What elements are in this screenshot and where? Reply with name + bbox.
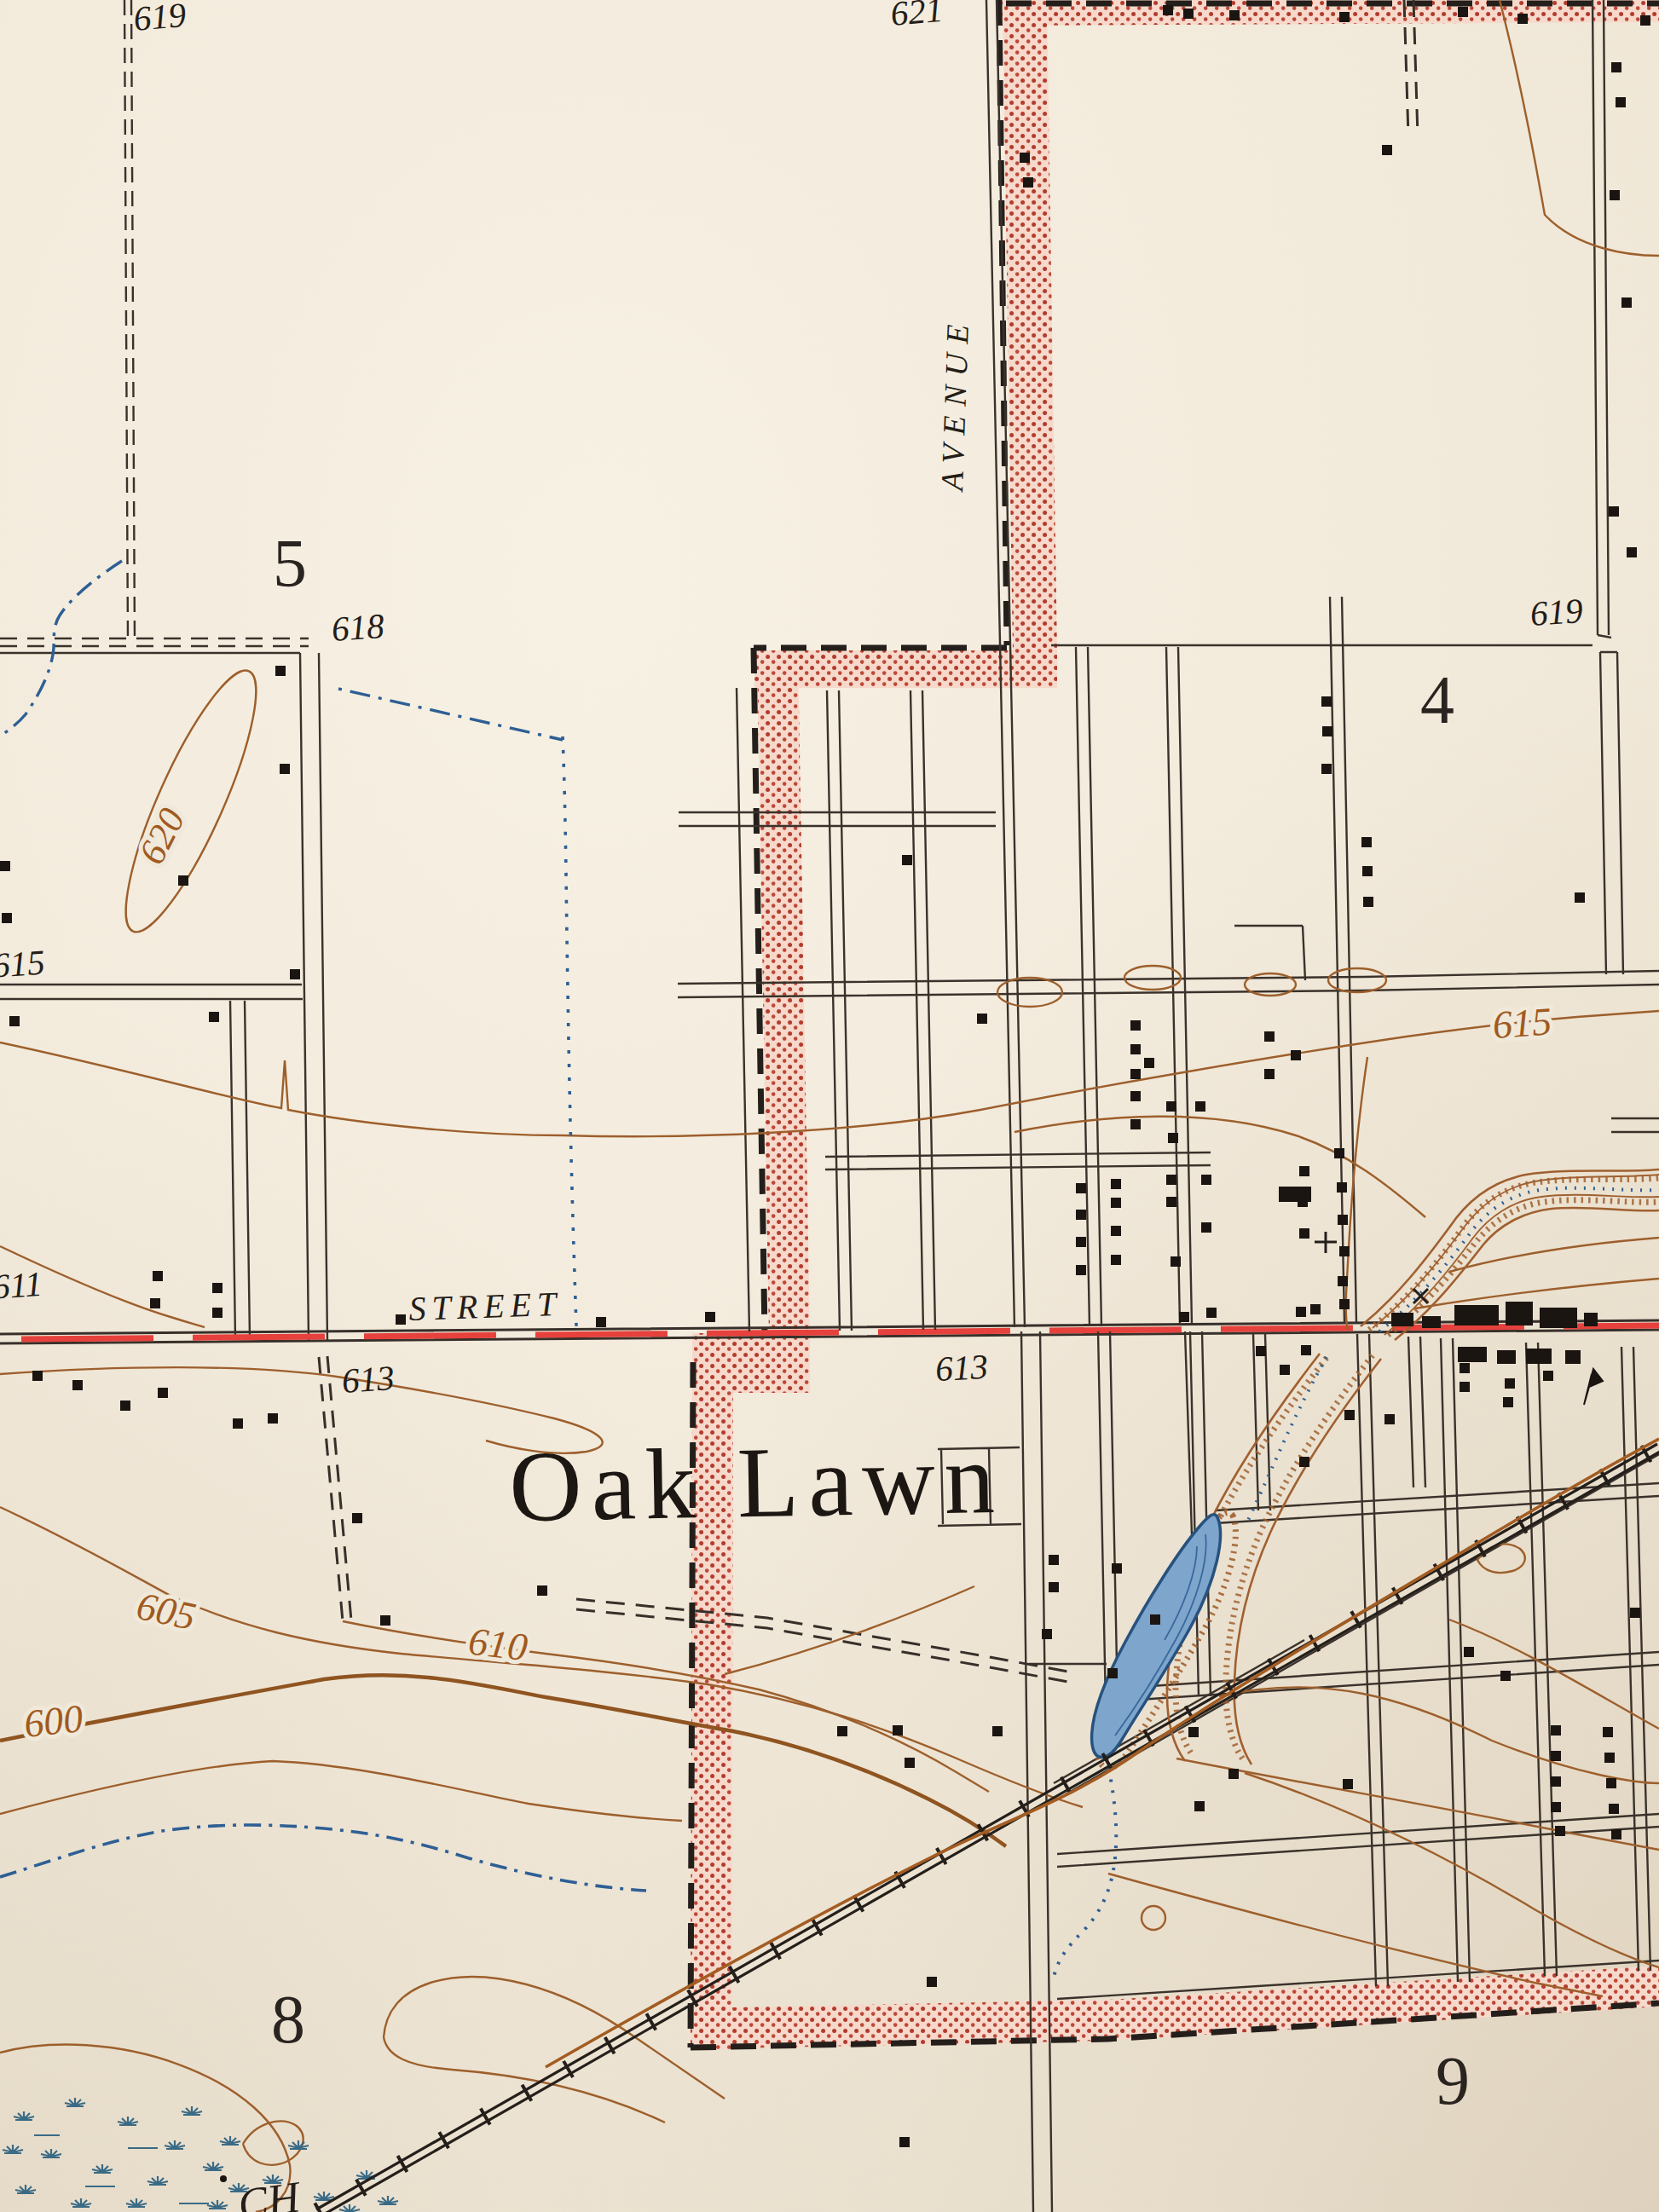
svg-text:615: 615 bbox=[1491, 999, 1552, 1047]
svg-text:4: 4 bbox=[1420, 662, 1454, 737]
svg-text:5: 5 bbox=[273, 526, 307, 601]
svg-text:611: 611 bbox=[0, 1264, 43, 1307]
svg-text:619: 619 bbox=[1529, 591, 1584, 633]
svg-text:OakLawn: OakLawn bbox=[508, 1423, 1004, 1543]
svg-text:STREET: STREET bbox=[408, 1285, 563, 1328]
svg-text:8: 8 bbox=[271, 1982, 305, 2057]
svg-text:618: 618 bbox=[330, 606, 385, 649]
svg-text:610: 610 bbox=[466, 1619, 530, 1669]
svg-text:AVENUE: AVENUE bbox=[934, 315, 975, 494]
svg-text:613: 613 bbox=[934, 1347, 989, 1389]
svg-text:615: 615 bbox=[0, 942, 46, 985]
svg-text:619: 619 bbox=[132, 0, 188, 38]
svg-text:613: 613 bbox=[340, 1358, 396, 1401]
svg-text:621: 621 bbox=[889, 0, 945, 33]
svg-text:9: 9 bbox=[1436, 2043, 1470, 2118]
svg-text:600: 600 bbox=[22, 1696, 85, 1746]
